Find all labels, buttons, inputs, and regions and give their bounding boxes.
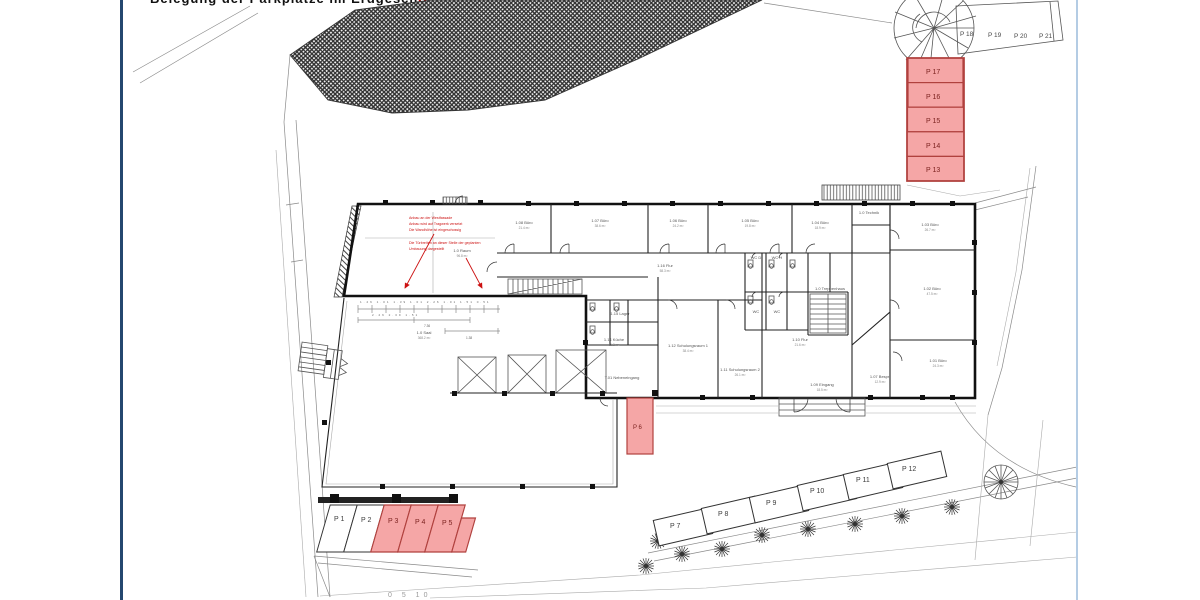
wc-fixtures <box>590 260 795 334</box>
annotation-line: Die Türbreiten an dieser Stelle der gepl… <box>409 241 480 245</box>
room-label: 1.0 Treppenhaus <box>815 286 845 291</box>
curb-band <box>318 494 458 503</box>
room-label: WC H <box>772 255 783 260</box>
room-label: WC <box>774 309 781 314</box>
room-label: 1.04 Büro <box>811 220 829 225</box>
dimension-total: 7.36 <box>424 324 430 328</box>
parking-stall-label: P 2 <box>361 517 371 524</box>
dimension-values-2: 2.26 2.39 1.51 <box>372 313 419 317</box>
shrub-icon <box>894 508 910 524</box>
svg-text:19.8 m²: 19.8 m² <box>745 224 756 228</box>
parking-stall-label: P 5 <box>442 520 452 527</box>
annotation-line: Anbau wird auf Tragwerk versetzt <box>409 222 462 226</box>
svg-text:58.3 m²: 58.3 m² <box>660 269 671 273</box>
site-plan-page: Belegung der Parkplätze im Erdgeschoss, … <box>0 0 1200 600</box>
room-label: 1.05 Büro <box>741 218 759 223</box>
parking-row-left: P 1 P 2 P 3 P 4 P 5 <box>317 505 479 552</box>
parking-stall-label: P 1 <box>334 516 344 523</box>
room-label: 1.16 Flur <box>657 263 673 268</box>
parking-stall-label: P 19 <box>988 32 1002 39</box>
svg-text:38.4 m²: 38.4 m² <box>683 349 694 353</box>
parking-stall-label: P 11 <box>856 477 870 484</box>
svg-text:18.9 m²: 18.9 m² <box>815 226 826 230</box>
parking-stall-label: P 17 <box>926 69 940 76</box>
parking-stall-label: P 9 <box>766 500 776 507</box>
parking-row-top: P 18 P 19 P 20 P 21 <box>956 1 1063 54</box>
parking-stall-label: P 8 <box>718 511 728 518</box>
room-label: WC <box>753 309 760 314</box>
shrub-icon <box>944 499 960 515</box>
parking-stall-label: P 13 <box>926 167 940 174</box>
shrub-icon <box>638 558 654 574</box>
main-entrance <box>779 398 865 416</box>
parking-stall-label: P 18 <box>960 31 974 38</box>
staircase <box>508 279 846 333</box>
parking-stall-label: P 7 <box>670 523 680 530</box>
svg-text:24.2 m²: 24.2 m² <box>673 224 684 228</box>
svg-text:21.6 m²: 21.6 m² <box>795 343 806 347</box>
room-label: 1.06 Büro <box>669 218 687 223</box>
annotation-line: Die Wandhöhe ist eingeschossig <box>409 228 461 232</box>
parking-stall-label: P 4 <box>415 519 425 526</box>
room-label: 1.11 Schulungsraum 2 <box>720 367 761 372</box>
clipped-scale-bar: 0 5 10 <box>388 592 508 600</box>
parking-stall-label: P 3 <box>388 518 398 525</box>
dimension-extra: 1.38 <box>466 336 472 340</box>
parking-stall-label: P 6 <box>633 425 643 431</box>
shrub-icon <box>714 541 730 557</box>
parking-stall-label: P 10 <box>810 488 824 495</box>
terrace-hatch <box>822 185 900 200</box>
room-label: 1.07 Bespr. <box>870 374 890 379</box>
svg-text:18.5 m²: 18.5 m² <box>817 388 828 392</box>
room-label: 1.02 Büro <box>923 286 941 291</box>
room-label: 1.08 Büro <box>515 220 533 225</box>
room-label: 1.15 Lager <box>610 311 630 316</box>
room-label: 1.01 Büro <box>929 358 947 363</box>
svg-text:47.5 m²: 47.5 m² <box>927 292 938 296</box>
parking-stall-label: P 20 <box>1014 33 1028 40</box>
parking-stall-label: P 21 <box>1039 33 1053 40</box>
room-label: 1.14 Küche <box>604 337 625 342</box>
hatched-embankment <box>290 0 762 113</box>
svg-text:12.9 m²: 12.9 m² <box>875 380 886 384</box>
room-label: 1.12 Schulungsraum 1 <box>668 343 709 348</box>
annotation-line: Anbau an der Westfassade <box>409 216 452 220</box>
room-label: 1.0 Raum <box>453 248 471 253</box>
hall-and-skylights <box>322 298 617 487</box>
page-right-border <box>1076 0 1078 600</box>
room-label: 1.07 Büro <box>591 218 609 223</box>
floor-plan-drawing: P 18 P 19 P 20 P 21 P 17 P 16 P 15 P 14 … <box>0 0 1200 600</box>
room-label: 1.03 Büro <box>921 222 939 227</box>
shrub-icon <box>674 546 690 562</box>
svg-text:11.2 m²: 11.2 m² <box>609 343 620 347</box>
parking-stack-right: P 17 P 16 P 15 P 14 P 13 <box>907 58 1000 196</box>
parking-stall-label: P 14 <box>926 143 940 150</box>
room-label: 1.0 Saal <box>417 330 432 335</box>
room-label: WC D <box>751 255 762 260</box>
parking-stall-label: P 15 <box>926 118 940 125</box>
shrub-icon <box>847 516 863 532</box>
svg-text:24.3 m²: 24.3 m² <box>933 364 944 368</box>
shrub-icon <box>800 521 816 537</box>
svg-text:96.8 m²: 96.8 m² <box>457 254 468 258</box>
svg-text:368.2 m²: 368.2 m² <box>418 336 431 340</box>
svg-text:26.7 m²: 26.7 m² <box>925 228 936 232</box>
room-label: 1.10 Flur <box>792 337 808 342</box>
page-left-border <box>120 0 123 600</box>
dimension-values: 1.26 1.01 1.39 1.01 2.26 1.01 1.51 0.51 <box>360 300 491 304</box>
svg-text:26.1 m²: 26.1 m² <box>735 373 746 377</box>
parking-row-bottom: P 7 P 8 P 9 P 10 P 11 P 12 <box>653 451 946 546</box>
room-label: 1.09 Eingang <box>810 382 834 387</box>
svg-text:21.4 m²: 21.4 m² <box>519 226 530 230</box>
room-label: 1.0 Technik <box>859 210 879 215</box>
parking-stall-label: P 12 <box>902 466 916 473</box>
parking-stall-label: P 16 <box>926 94 940 101</box>
wheel-tree-icon <box>984 465 1018 499</box>
shrub-icon <box>754 527 770 543</box>
svg-text:38.6 m²: 38.6 m² <box>595 224 606 228</box>
room-label: T.01 Nebeneingang <box>605 375 640 380</box>
parking-stall-p6: P 6 <box>627 398 653 454</box>
